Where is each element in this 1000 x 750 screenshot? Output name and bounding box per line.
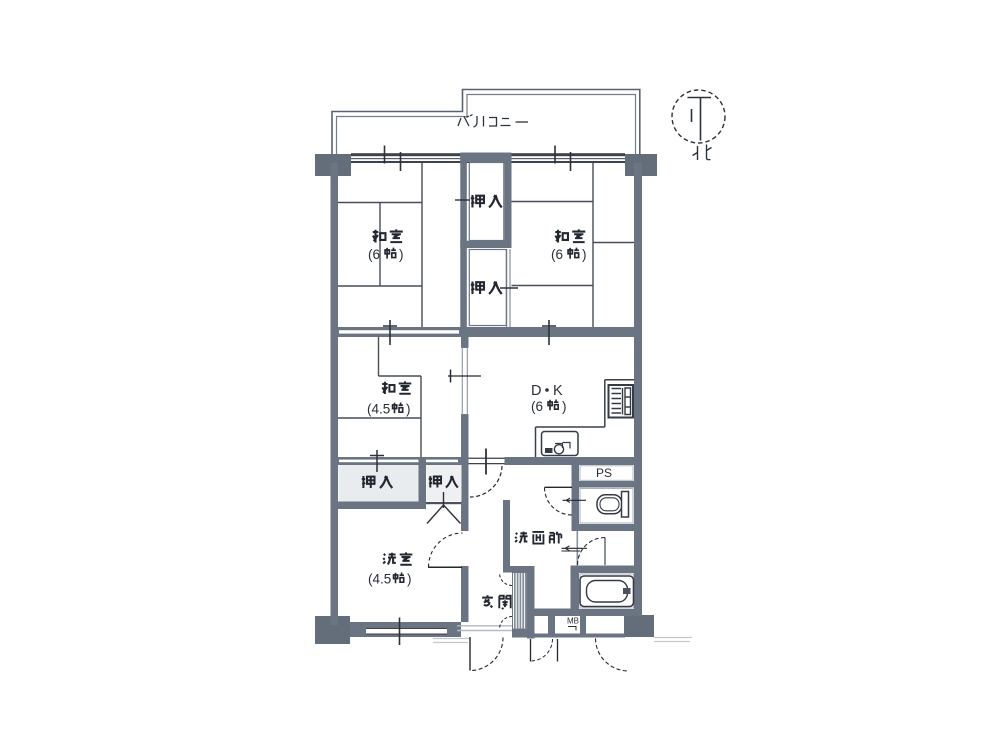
svg-text:(4.5: (4.5 bbox=[367, 402, 390, 417]
svg-text:): ) bbox=[406, 402, 411, 417]
svg-text:): ) bbox=[562, 399, 567, 414]
svg-text:K: K bbox=[553, 383, 563, 399]
svg-text:PS: PS bbox=[596, 466, 612, 480]
svg-text:(6: (6 bbox=[531, 399, 543, 414]
svg-text:): ) bbox=[407, 572, 412, 587]
svg-text:MB: MB bbox=[567, 617, 579, 626]
svg-text:D: D bbox=[531, 383, 541, 399]
svg-text:): ) bbox=[582, 247, 587, 262]
svg-text:(4.5: (4.5 bbox=[368, 572, 391, 587]
svg-text:(6: (6 bbox=[368, 247, 380, 262]
svg-text:): ) bbox=[399, 247, 404, 262]
svg-text:(6: (6 bbox=[551, 247, 563, 262]
